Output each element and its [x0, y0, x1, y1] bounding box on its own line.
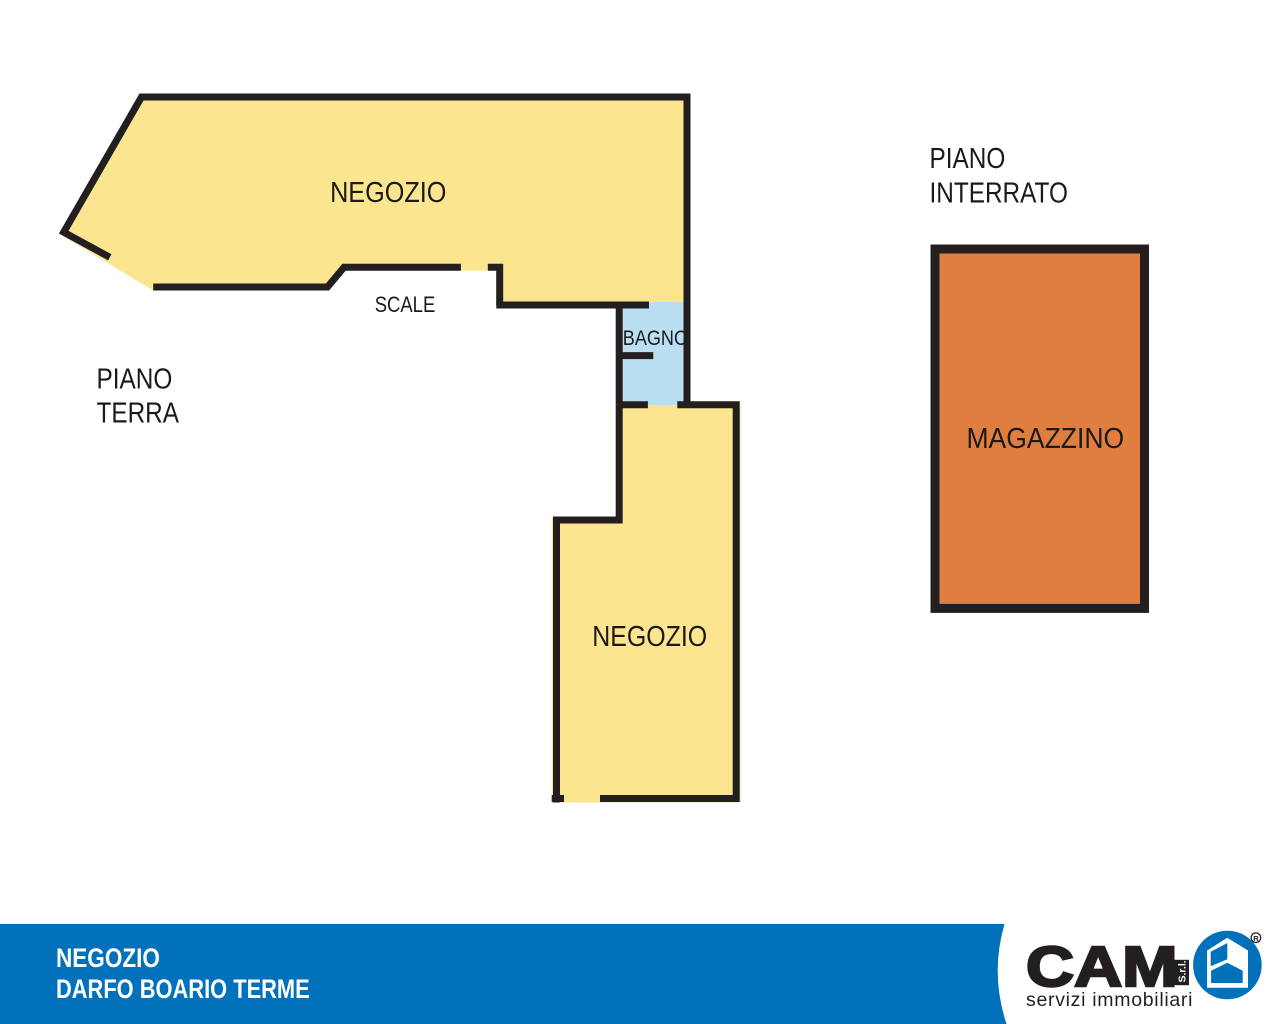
svg-text:MAGAZZINO: MAGAZZINO [966, 422, 1124, 454]
svg-text:SCALE: SCALE [375, 294, 436, 318]
svg-text:TERRA: TERRA [96, 397, 179, 429]
svg-text:INTERRATO: INTERRATO [930, 177, 1068, 209]
svg-text:NEGOZIO: NEGOZIO [330, 175, 446, 208]
svg-text:NEGOZIO: NEGOZIO [56, 943, 160, 973]
svg-text:DARFO BOARIO TERME: DARFO BOARIO TERME [56, 975, 310, 1005]
svg-text:servizi immobiliari: servizi immobiliari [1026, 989, 1193, 1011]
svg-text:PIANO: PIANO [930, 142, 1006, 174]
svg-text:BAGNO: BAGNO [623, 327, 688, 351]
svg-text:PIANO: PIANO [96, 363, 172, 395]
svg-text:NEGOZIO: NEGOZIO [592, 620, 707, 652]
svg-text:S.r.l.: S.r.l. [1177, 960, 1189, 982]
svg-text:R: R [1253, 934, 1259, 943]
